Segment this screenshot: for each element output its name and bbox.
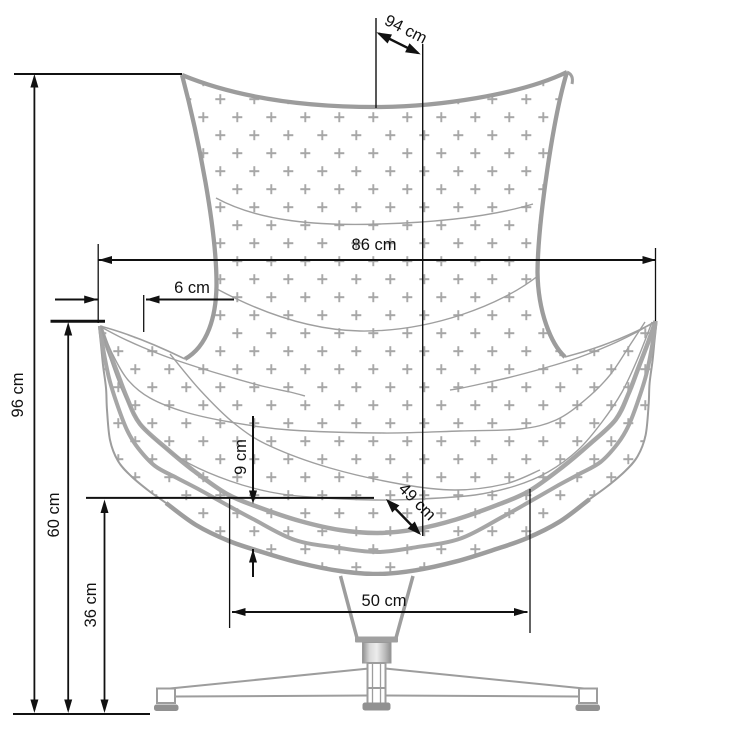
- svg-text:60 cm: 60 cm: [45, 493, 63, 538]
- svg-text:6 cm: 6 cm: [174, 279, 210, 297]
- svg-text:96 cm: 96 cm: [9, 373, 27, 418]
- svg-text:94 cm: 94 cm: [382, 11, 430, 47]
- svg-text:36 cm: 36 cm: [82, 583, 100, 628]
- svg-text:9 cm: 9 cm: [232, 439, 250, 475]
- svg-text:86 cm: 86 cm: [352, 236, 397, 254]
- svg-text:50 cm: 50 cm: [362, 592, 407, 610]
